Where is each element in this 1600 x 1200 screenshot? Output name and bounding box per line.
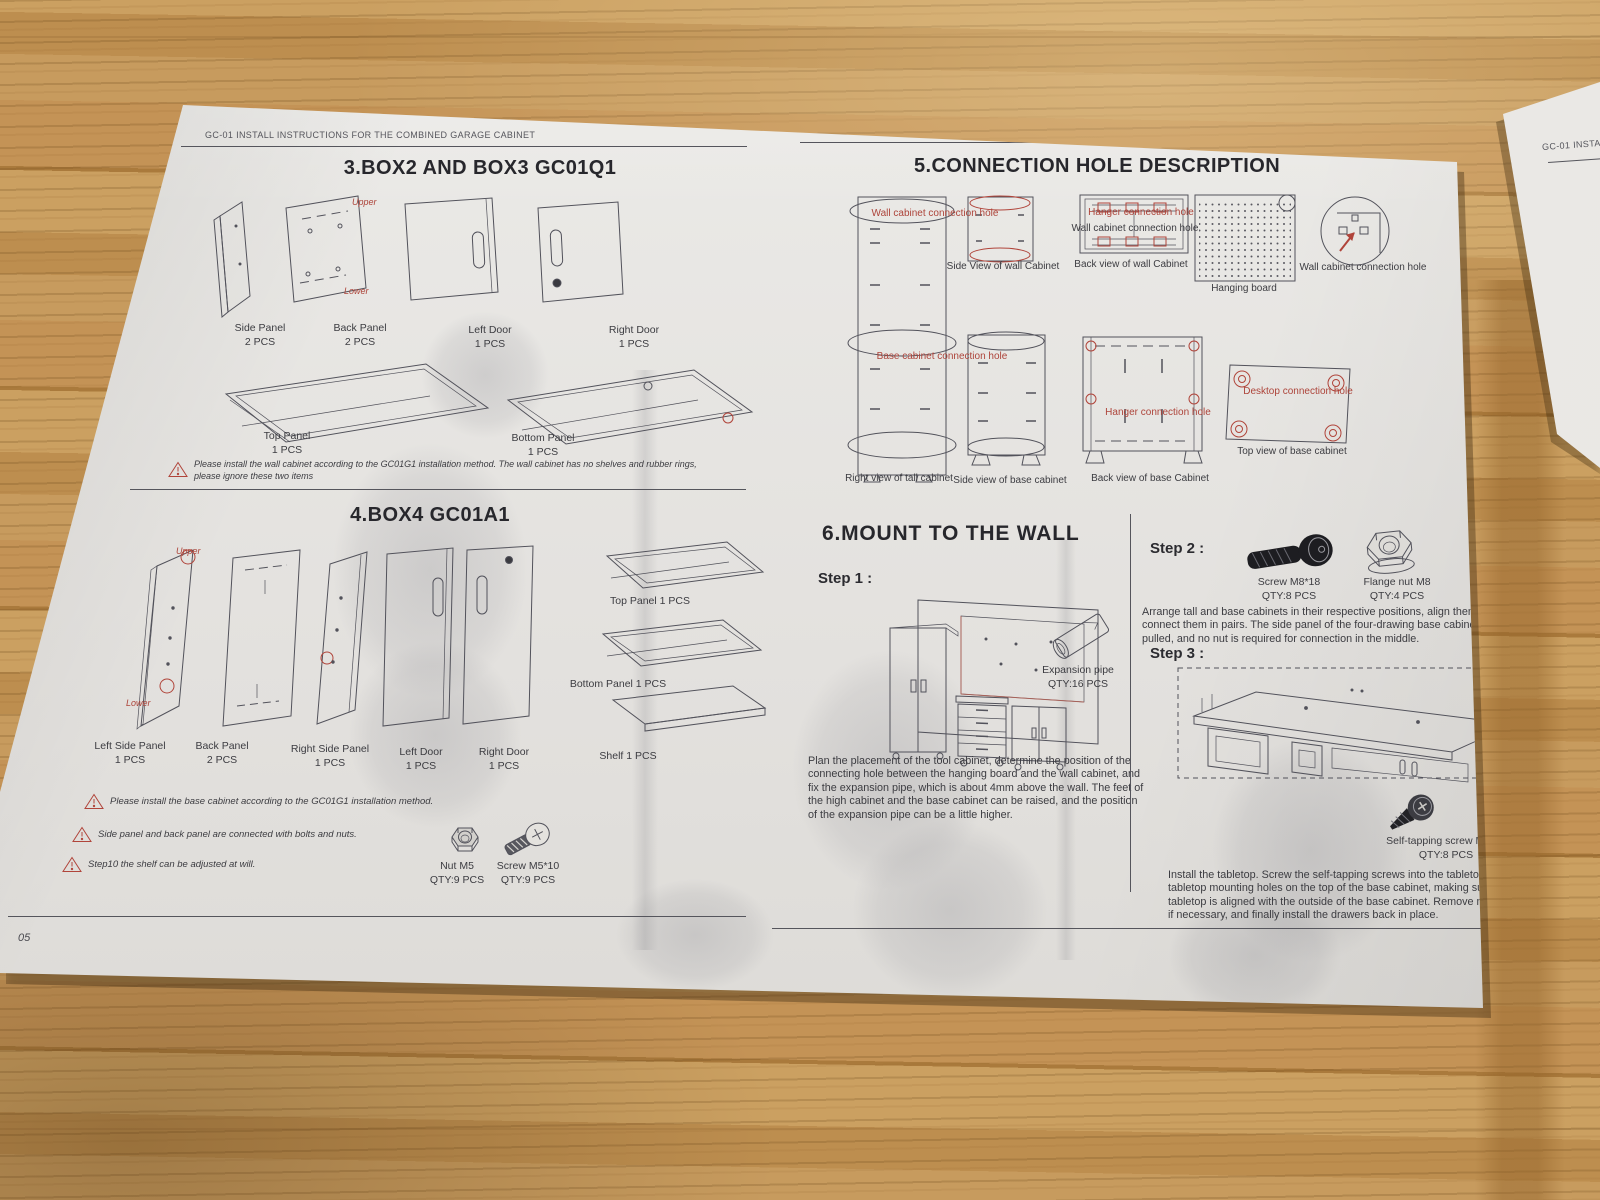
section4-warning2: Side panel and back panel are connected … — [98, 829, 357, 840]
footer-rule-left — [8, 916, 746, 917]
bottom-panel-label: Bottom Panel 1 PCS — [570, 678, 666, 692]
part-label: Left Door 1 PCS — [399, 746, 442, 773]
part-qty: 1 PCS — [264, 444, 311, 458]
part-name: Left Side Panel — [94, 740, 165, 754]
part-name: Right Side Panel — [291, 743, 369, 757]
part-label: Right Side Panel 1 PCS — [291, 743, 369, 770]
step2-text: Arrange tall and base cabinets in their … — [1142, 606, 1526, 646]
desktop-hole-label: Desktop connection hole — [1243, 386, 1353, 397]
part-name: Left Door — [468, 324, 511, 338]
hardware-name: Expansion pipe — [1042, 664, 1114, 678]
part-name: Top Panel — [264, 430, 311, 444]
upper-label: Upper — [176, 546, 201, 556]
header-rule-left — [181, 146, 747, 147]
screw-m8-icon — [1243, 530, 1341, 578]
top-panel-label: Top Panel 1 PCS — [610, 595, 690, 609]
step3-label: Step 3 : — [1150, 645, 1204, 662]
part-name: Back Panel — [333, 322, 386, 336]
paper-stain — [590, 860, 800, 1010]
hanger-hole-base-label: Hanger connection hole — [1105, 407, 1211, 418]
part-name: Left Door — [399, 746, 442, 760]
caption-side-base: Side view of base cabinet — [953, 475, 1066, 486]
part-label: Left Side Panel 1 PCS — [94, 740, 165, 767]
column-divider — [1130, 514, 1131, 892]
caption-side-wall: Side View of wall Cabinet — [947, 261, 1060, 272]
section5-title: 5.CONNECTION HOLE DESCRIPTION — [914, 155, 1280, 178]
screw-m8-label: Screw M8*18 QTY:8 PCS — [1258, 576, 1320, 603]
part-qty: 1 PCS — [609, 338, 659, 352]
part-label: Bottom Panel 1 PCS — [511, 432, 574, 459]
section-divider-rule — [130, 489, 746, 490]
hardware-name: Screw M8*18 — [1258, 576, 1320, 590]
section3-note-line2: please ignore these two items — [194, 471, 313, 481]
part-qty: 2 PCS — [333, 336, 386, 350]
flange-nut-icon — [1358, 526, 1422, 580]
photo-of-manual: GC-01 INSTALL INSTRUCTIONS FOR THE COMBI… — [0, 0, 1600, 1200]
hanger-hole-label: Hanger connection hole — [1088, 207, 1194, 218]
footer-rule-right — [772, 928, 1544, 929]
part-qty: 1 PCS — [468, 338, 511, 352]
caption-hanging-board: Hanging board — [1211, 283, 1277, 294]
lower-label: Lower — [344, 286, 369, 296]
section3-note-line1: Please install the wall cabinet accordin… — [194, 459, 697, 469]
side-sheet-rule — [1548, 158, 1600, 163]
wall-cabinet-hole-back-label: Wall cabinet connection hole — [1072, 223, 1199, 234]
expansion-pipe-icon — [1046, 606, 1122, 664]
hardware-qty: QTY:9 PCS — [497, 874, 559, 888]
caption-back-base: Back view of base Cabinet — [1091, 473, 1209, 484]
part-name: Right Door — [609, 324, 659, 338]
step1-label: Step 1 : — [818, 570, 872, 587]
part-qty: 1 PCS — [291, 757, 369, 771]
caption-wall-hole-zoom: Wall cabinet connection hole — [1300, 262, 1427, 273]
base-cabinet-hole-label: Base cabinet connection hole — [877, 351, 1008, 362]
expansion-pipe-label: Expansion pipe QTY:16 PCS — [1042, 664, 1114, 691]
part-qty: 2 PCS — [235, 336, 286, 350]
flange-nut-label: Flange nut M8 QTY:4 PCS — [1363, 576, 1430, 603]
caption-top-base: Top view of base cabinet — [1237, 446, 1347, 457]
part-name: Side Panel — [235, 322, 286, 336]
part-qty: 1 PCS — [479, 760, 529, 774]
upper-label: Upper — [352, 197, 377, 207]
part-label: Right Door 1 PCS — [609, 324, 659, 351]
wood-seam — [0, 1128, 1600, 1130]
part-label: Back Panel 2 PCS — [195, 740, 248, 767]
screw-icon — [502, 820, 554, 860]
hardware-name: Screw M5*10 — [497, 860, 559, 874]
lower-label: Lower — [126, 698, 151, 708]
nut-label: Nut M5 QTY:9 PCS — [430, 860, 484, 887]
part-qty: 2 PCS — [195, 754, 248, 768]
part-label: Left Door 1 PCS — [468, 324, 511, 351]
hardware-qty: QTY:4 PCS — [1363, 590, 1430, 604]
part-qty: 1 PCS — [399, 760, 442, 774]
warning-triangle-icon — [168, 461, 188, 478]
part-qty: 1 PCS — [511, 446, 574, 460]
section4-title: 4.BOX4 GC01A1 — [350, 504, 510, 527]
step1-text: Plan the placement of the tool cabinet, … — [808, 755, 1144, 822]
part-qty: 1 PCS — [94, 754, 165, 768]
section6-title: 6.MOUNT TO THE WALL — [822, 522, 1079, 546]
page-number-left: 05 — [18, 932, 30, 944]
wood-seam — [0, 36, 1600, 38]
caption-back-wall: Back view of wall Cabinet — [1074, 259, 1187, 270]
part-name: Bottom Panel — [511, 432, 574, 446]
caption-right-tall: Right view of tall cabinet — [845, 473, 953, 484]
shelf-label: Shelf 1 PCS — [599, 750, 656, 764]
section4-warning3: Step10 the shelf can be adjusted at will… — [88, 859, 255, 870]
page-header-left: GC-01 INSTALL INSTRUCTIONS FOR THE COMBI… — [205, 130, 535, 140]
part-name: Right Door — [479, 746, 529, 760]
hardware-qty: QTY:8 PCS — [1258, 590, 1320, 604]
hardware-name: Flange nut M8 — [1363, 576, 1430, 590]
box2-parts-diagram — [190, 186, 750, 326]
warning-triangle-icon — [62, 856, 82, 873]
box4-parts-diagram — [115, 538, 765, 743]
side-sheet-header: GC-01 INSTA — [1542, 138, 1600, 152]
part-label: Side Panel 2 PCS — [235, 322, 286, 349]
warning-triangle-icon — [84, 793, 104, 810]
part-name: Back Panel — [195, 740, 248, 754]
hardware-qty: QTY:9 PCS — [430, 874, 484, 888]
screw-label: Screw M5*10 QTY:9 PCS — [497, 860, 559, 887]
part-label: Back Panel 2 PCS — [333, 322, 386, 349]
warning-triangle-icon — [72, 826, 92, 843]
nut-icon — [446, 824, 484, 856]
part-label: Right Door 1 PCS — [479, 746, 529, 773]
part-label: Top Panel 1 PCS — [264, 430, 311, 457]
step2-label: Step 2 : — [1150, 540, 1204, 557]
hardware-qty: QTY:16 PCS — [1042, 678, 1114, 692]
hardware-name: Nut M5 — [430, 860, 484, 874]
section4-warning1: Please install the base cabinet accordin… — [110, 796, 433, 807]
section3-title: 3.BOX2 AND BOX3 GC01Q1 — [344, 157, 617, 180]
wall-cabinet-hole-label: Wall cabinet connection hole — [872, 208, 999, 219]
self-tapping-screw-icon — [1385, 786, 1447, 840]
